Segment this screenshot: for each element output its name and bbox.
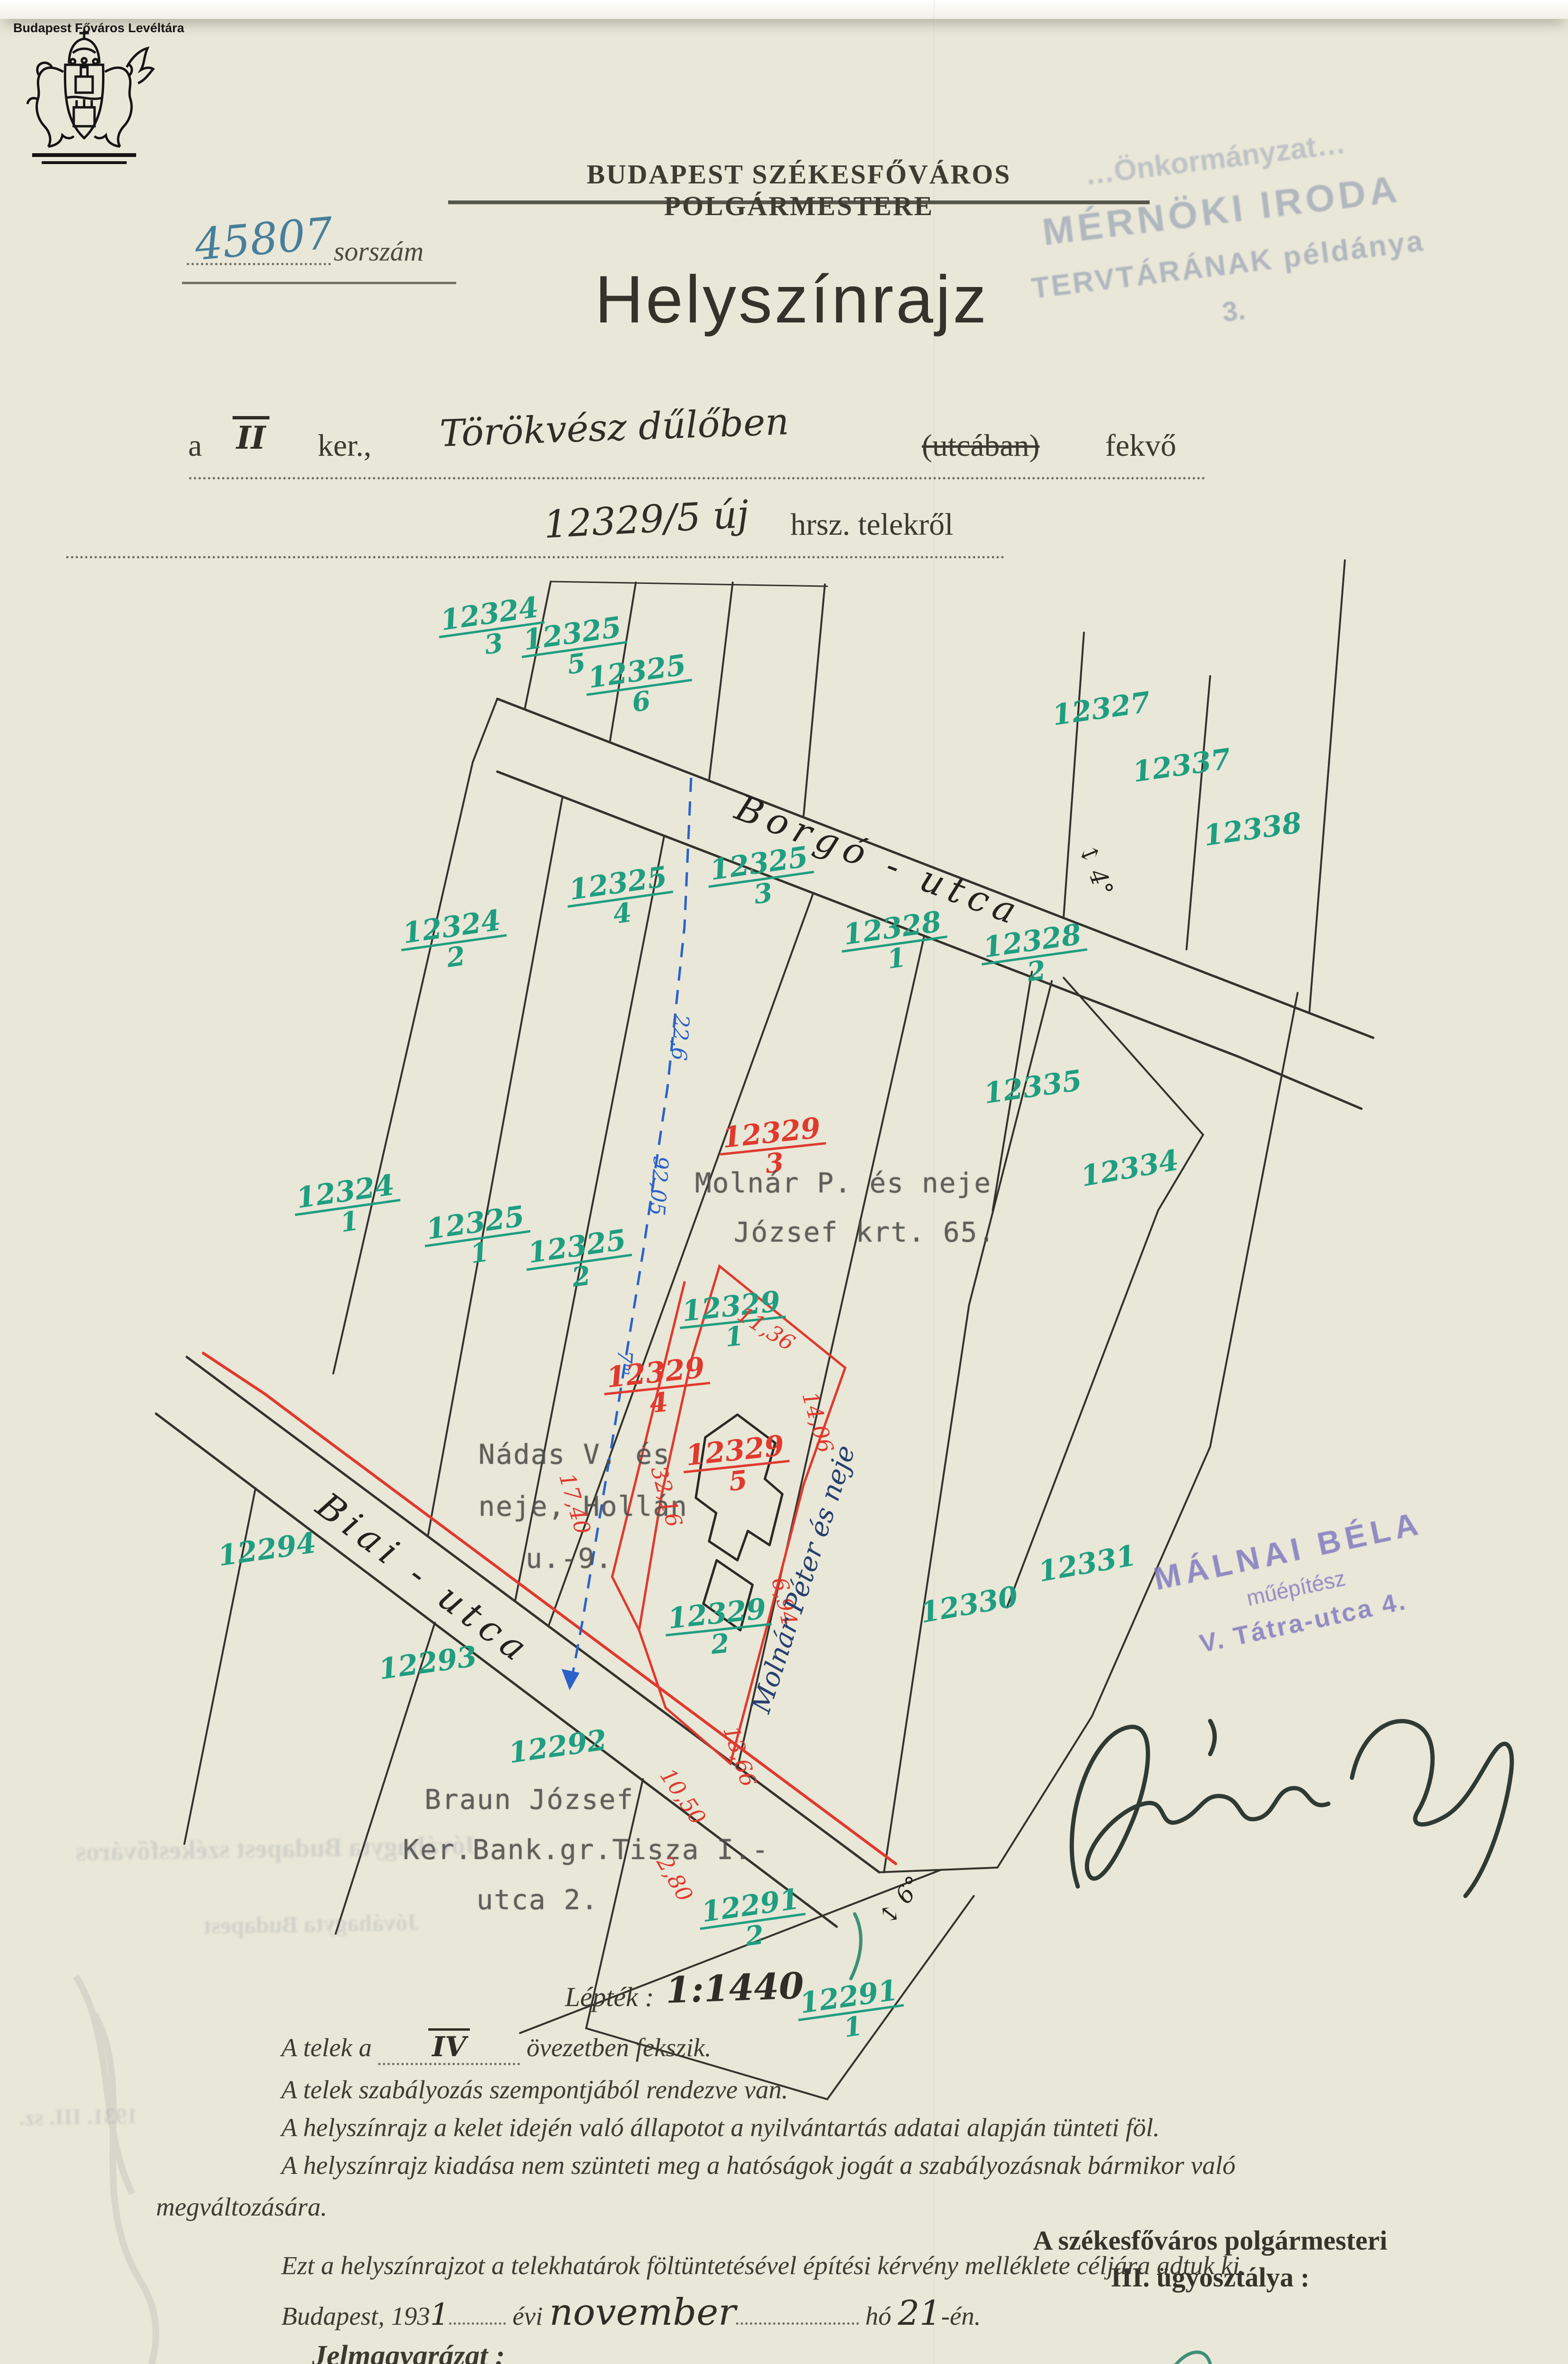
date-line: Budapest, 1931 évi november hó 21-én. — [281, 2291, 981, 2334]
plot-label-12324-2: 123242 — [397, 905, 511, 978]
plot-label-12292: 12292 — [503, 1725, 612, 1769]
plot-label-12325-2: 123252 — [522, 1225, 636, 1297]
owner-typed-text: Braun József — [424, 1783, 634, 1816]
office-department-block: A székesfőváros polgármesteri III. ügyos… — [979, 2222, 1442, 2296]
plot-label-12291-1: 122911 — [794, 1975, 908, 2048]
owner-typed-text: utca 2. — [476, 1884, 598, 1916]
plot-label-12329-5: 123295 — [681, 1431, 792, 1500]
body-line-4: A helyszínrajz kiadása nem szünteti meg … — [281, 2150, 1236, 2180]
blue-measure-label: 92,05 — [645, 1156, 673, 1217]
plot-label-12293: 12293 — [373, 1642, 482, 1685]
plot-label-12330: 12330 — [914, 1582, 1024, 1628]
date-month-handwritten: november — [549, 2291, 736, 2334]
date-printed-2: évi — [512, 2302, 543, 2330]
blue-measure-label: 7ᵐ — [611, 1349, 637, 1377]
office-department-line2: III. ügyosztálya : — [979, 2259, 1442, 2296]
date-year-handwritten: 1 — [430, 2297, 450, 2332]
date-printed-4: -én. — [941, 2302, 981, 2330]
plot-label-12329-2: 123292 — [663, 1594, 774, 1663]
body-p1b: övezetben fekszik. — [527, 2033, 711, 2062]
date-printed-3: hó — [866, 2302, 892, 2330]
blue-measure-label: 22,6 — [667, 1014, 694, 1061]
zone-value-handwritten: IV — [428, 2028, 470, 2063]
plot-label-12338: 12338 — [1198, 808, 1307, 852]
plot-label-12328-2: 123282 — [978, 920, 1091, 992]
zone-blank: IV — [378, 2031, 520, 2065]
plot-label-12324-1: 123241 — [291, 1170, 404, 1243]
plot-label-12325-6: 123256 — [582, 650, 696, 722]
date-day-handwritten: 21 — [898, 2293, 941, 2333]
body-line-2: A telek szabályozás szempontjából rendez… — [281, 2075, 788, 2104]
plot-label-12291-2: 122912 — [696, 1884, 809, 1956]
plot-label-12325-3: 123253 — [704, 842, 818, 914]
red-dimension-label: 13,66 — [718, 1723, 762, 1790]
body-line-zone: A telek a IV övezetben fekszik. — [281, 2031, 711, 2065]
street-width-mark: ↕ 6° — [873, 1871, 928, 1930]
red-dimension-label: 10,50 — [655, 1764, 711, 1829]
map-labels-layer: 1232431232551232561232712337123381232421… — [0, 0, 1568, 2364]
plot-label-12328-1: 123281 — [838, 907, 951, 979]
owner-typed-text: Molnár P. és neje — [695, 1167, 992, 1199]
body-line-3: A helyszínrajz a kelet idején való állap… — [281, 2112, 1160, 2142]
legend-title: Jelmagyarázat : — [312, 2339, 505, 2364]
plot-label-12335: 12335 — [978, 1066, 1087, 1109]
date-printed-1: Budapest, 193 — [281, 2302, 430, 2330]
plot-label-12327: 12327 — [1047, 687, 1156, 731]
plot-label-12337: 12337 — [1127, 744, 1236, 788]
owner-typed-text: József krt. 65. — [734, 1216, 996, 1248]
street-width-mark: ↕ 4° — [1073, 840, 1119, 900]
body-line-5: megváltozására. — [156, 2192, 327, 2222]
scale-label: Lépték : — [565, 1981, 654, 2013]
plot-label-12294: 12294 — [212, 1528, 321, 1572]
body-p1a: A telek a — [281, 2033, 372, 2062]
plot-label-12325-1: 123251 — [421, 1201, 534, 1274]
bleedthrough-text-2: Jóváhagyta Budapest — [203, 1908, 420, 1939]
plot-label-12334: 12334 — [1075, 1145, 1185, 1192]
scale-value: 1:1440 — [665, 1964, 805, 2011]
plot-label-12325-4: 123254 — [563, 862, 677, 934]
office-department-line1: A székesfőváros polgármesteri — [979, 2222, 1442, 2259]
owner-typed-text: u.-9. — [526, 1542, 613, 1574]
bleedthrough-text-3: 1931. III. sz. — [19, 2103, 139, 2131]
document-page: Budapest Főváros Levéltára BUDAPEST SZÉK… — [0, 0, 1568, 2364]
owner-typed-text: Nádas V. és — [478, 1438, 670, 1470]
